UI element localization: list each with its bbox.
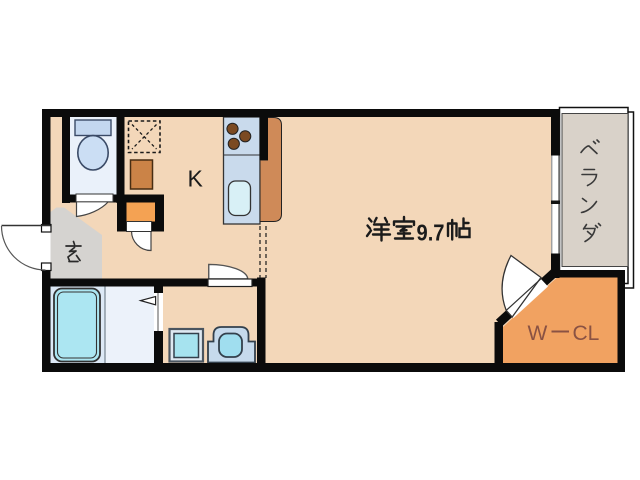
svg-text:K: K bbox=[188, 166, 204, 192]
svg-text:W: W bbox=[528, 322, 548, 345]
svg-text:CL: CL bbox=[573, 322, 600, 345]
svg-text:9.7: 9.7 bbox=[417, 220, 445, 246]
